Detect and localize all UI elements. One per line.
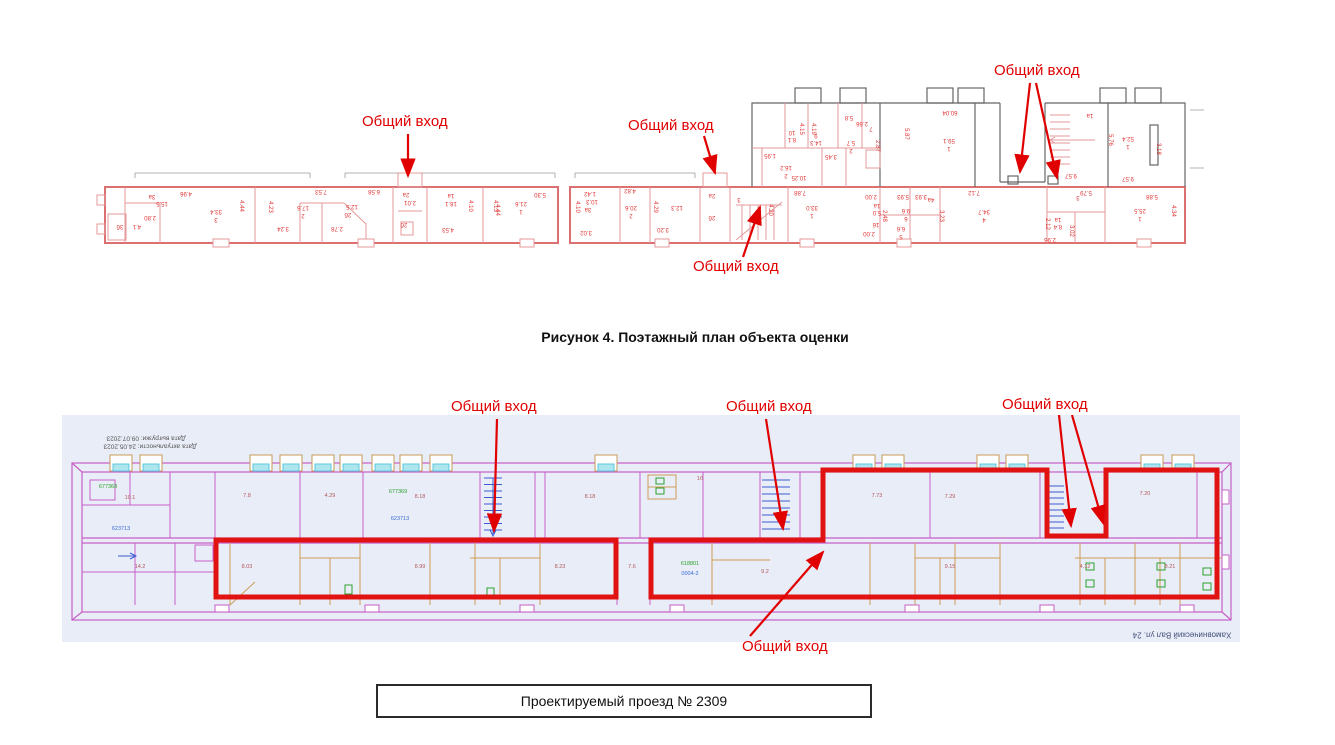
fixtures — [345, 478, 1211, 597]
window-marker — [977, 455, 999, 471]
tiny-label: 8.03 — [242, 564, 253, 570]
floor-plans-drawing — [0, 0, 1335, 745]
dim-label: 2.96 — [1044, 236, 1056, 242]
dim-label: 16 — [873, 221, 880, 227]
dim-label: 7.88 — [794, 189, 806, 195]
dim-label: 7 — [869, 125, 872, 131]
dim-label: 2а — [709, 192, 716, 198]
entrance-door — [1008, 176, 1018, 184]
dim-label: 2 — [784, 172, 787, 178]
window-glass — [885, 464, 901, 471]
window-marker — [1040, 605, 1054, 612]
dim-label: 1а — [1055, 216, 1062, 222]
report-page: Рисунок 4. Поэтажный план объекта оценки… — [0, 0, 1335, 745]
dim-label: 2 — [301, 212, 304, 218]
tiny-label: 4.29 — [325, 493, 336, 499]
dim-label: 8.1 — [788, 136, 796, 142]
dim-label: 4.15 — [798, 123, 804, 135]
dim-label: 3 — [214, 216, 217, 222]
window-glass — [315, 464, 331, 471]
dim-label: 2.00 — [863, 230, 875, 236]
dim-label: 4 — [982, 216, 985, 222]
window-marker — [897, 239, 911, 247]
entrance-arrow — [494, 419, 497, 531]
window-glass — [253, 464, 269, 471]
window-marker — [595, 455, 617, 471]
window-marker — [213, 239, 229, 247]
entrance-arrow — [750, 552, 823, 636]
right-wing-walls — [570, 173, 1185, 247]
tiny-label: 7.29 — [945, 494, 956, 500]
road-label-box: Проектируемый проезд № 2309 — [376, 684, 872, 718]
dim-label: 4.34 — [1170, 205, 1176, 217]
entrance-label: Общий вход — [1002, 396, 1088, 413]
window-marker — [280, 455, 302, 471]
dim-label: 4.53 — [442, 226, 454, 232]
entrance-door — [1048, 176, 1058, 184]
dim-label: 5.0 — [873, 209, 881, 215]
window-marker — [1222, 555, 1229, 569]
stairs-icon — [118, 478, 1064, 559]
chimney — [1135, 88, 1161, 103]
window-marker — [1137, 239, 1151, 247]
tiny-label: 4.12 — [1080, 564, 1091, 570]
dim-label: 3б — [117, 223, 124, 229]
entrance-label: Общий вход — [628, 117, 714, 134]
dim-label: 4.23 — [267, 201, 273, 213]
chimney — [958, 88, 984, 103]
dim-label: 5.87 — [903, 128, 909, 140]
dim-label: 3.18 — [1155, 143, 1161, 155]
window-marker — [520, 605, 534, 612]
dim-label: 5.93 — [897, 193, 909, 199]
entrance-vestibule — [398, 173, 422, 187]
dim-label: 6.58 — [368, 188, 380, 194]
window-marker — [1180, 605, 1194, 612]
address-label: Хамовнический Вал ул. 24 — [1133, 630, 1232, 639]
window-marker — [400, 455, 422, 471]
window-marker — [430, 455, 452, 471]
window-glass — [980, 464, 996, 471]
code-label: 618801 — [681, 561, 699, 567]
entrance-arrow — [766, 419, 783, 529]
dim-label: 2.66 — [856, 120, 868, 126]
dim-label: 25.5 — [1134, 207, 1146, 213]
dim-label: 4.29 — [652, 201, 658, 213]
tiny-label: 8.99 — [415, 564, 426, 570]
entrance-label: Общий вход — [994, 62, 1080, 79]
window-glass — [1175, 464, 1191, 471]
dim-label: 52.4 — [1122, 135, 1134, 141]
dim-label: 4.10 — [467, 200, 473, 212]
dim-label: 12.3 — [671, 204, 683, 210]
dim-label: 2 — [849, 147, 852, 153]
entrance-arrow — [743, 207, 760, 257]
dim-label: 10.3 — [586, 198, 598, 204]
window-marker — [372, 455, 394, 471]
window-glass — [433, 464, 449, 471]
window-glass — [1144, 464, 1160, 471]
tiny-label: 14.2 — [135, 564, 146, 570]
window-glass — [283, 464, 299, 471]
tiny-label: 7.6 — [628, 564, 636, 570]
dim-label: 2 — [629, 212, 632, 218]
dim-label: 59.1 — [943, 137, 955, 143]
dim-label: 1 — [947, 145, 950, 151]
window-marker — [110, 455, 132, 471]
survey-line — [135, 110, 1204, 178]
dim-label: 5 — [899, 233, 902, 239]
stairs-icon — [736, 202, 782, 240]
chimney — [1100, 88, 1126, 103]
dim-label: 3а — [149, 193, 156, 199]
dim-label: 3.23 — [938, 210, 944, 222]
partitions — [230, 475, 1222, 605]
window-marker — [670, 605, 684, 612]
window-glass — [343, 464, 359, 471]
window-marker — [365, 605, 379, 612]
dim-label: 15.5 — [156, 200, 168, 206]
dim-label: 34.7 — [978, 208, 990, 214]
dim-label: 5.88 — [1146, 193, 1158, 199]
entrance-label: Общий вход — [362, 113, 448, 130]
outer-walls — [72, 463, 1231, 620]
entrance-label: Общий вход — [693, 258, 779, 275]
dim-label: 2.00 — [865, 193, 877, 199]
dim-label: 4.44 — [238, 200, 244, 212]
figure-caption: Рисунок 4. Поэтажный план объекта оценки — [445, 329, 945, 345]
window-glass — [1009, 464, 1025, 471]
dim-label: 7.53 — [315, 188, 327, 194]
dim-label: 14.3 — [810, 139, 822, 145]
date-label: Дата выгрузки: 09.07.2023 — [106, 434, 185, 441]
code-label: 623713 — [112, 526, 130, 532]
dim-label: 4.13 — [492, 200, 498, 212]
dim-label: 2.80 — [144, 214, 156, 220]
dim-label: 3.02 — [580, 229, 592, 235]
dim-label: 3.93 — [915, 193, 927, 199]
entrance-arrows — [408, 83, 1103, 636]
dim-label: 8.4 — [1054, 223, 1062, 229]
tiny-label: 8.18 — [415, 494, 426, 500]
dim-label: 2.01 — [404, 199, 416, 205]
tiny-label: 7.20 — [1140, 491, 1151, 497]
entrance-arrow — [1036, 83, 1057, 178]
dim-label: 4.96 — [180, 190, 192, 196]
dim-label: 1а — [448, 192, 455, 198]
entrance-arrow — [1059, 415, 1071, 526]
dim-label: 20.6 — [625, 204, 637, 210]
dim-label: 3 — [1076, 194, 1079, 200]
dim-label: 3а — [585, 206, 592, 212]
window-marker — [520, 239, 534, 247]
entrance-arrow — [704, 136, 715, 173]
dim-label: 2б — [345, 211, 352, 217]
entrance-label: Общий вход — [726, 398, 812, 415]
tiny-label: 7.8 — [243, 493, 251, 499]
left-wing-walls — [97, 173, 558, 247]
window-marker — [655, 239, 669, 247]
window-glass — [598, 464, 614, 471]
upper-block-walls — [752, 88, 1185, 187]
entrance-arrow — [1072, 415, 1103, 523]
dim-label: 1 — [810, 212, 813, 218]
dim-label: 2.78 — [331, 225, 343, 231]
dim-label: 3.20 — [657, 226, 669, 232]
dim-label: 33.4 — [210, 208, 222, 214]
dim-label: 2б — [709, 214, 716, 220]
window-marker — [250, 455, 272, 471]
window-glass — [113, 464, 129, 471]
dim-label: 17.6 — [297, 204, 309, 210]
dim-label: 10 — [789, 129, 796, 135]
dim-label: 3.02 — [1068, 225, 1074, 237]
dim-label: 3 — [737, 196, 740, 202]
dim-label: 10.25 — [791, 174, 806, 180]
dim-label: 4.10 — [574, 201, 580, 213]
tiny-label: 8.23 — [555, 564, 566, 570]
dim-label: 9.57 — [1065, 172, 1077, 178]
tiny-label: 8.18 — [585, 494, 596, 500]
window-marker — [358, 239, 374, 247]
dim-label: 2.48 — [881, 210, 887, 222]
entrance-label: Общий вход — [742, 638, 828, 655]
dim-label: 1а — [874, 202, 881, 208]
dim-label: 1а — [1087, 112, 1094, 118]
dim-label: 4.19 — [810, 123, 816, 135]
entrance-arrow — [1020, 83, 1030, 172]
window-glass — [375, 464, 391, 471]
window-glass — [403, 464, 419, 471]
tiny-label: 1б — [697, 476, 703, 482]
window-marker — [140, 455, 162, 471]
window-marker — [340, 455, 362, 471]
code-label: 0004-2 — [681, 571, 698, 577]
window-marker — [1141, 455, 1163, 471]
dim-label: 9 — [814, 132, 817, 138]
tiny-label: 10.1 — [125, 495, 136, 501]
dim-label: 2а — [403, 191, 410, 197]
bottom-floor-plan — [62, 415, 1240, 642]
window-marker — [312, 455, 334, 471]
chimney — [840, 88, 866, 103]
dim-label: 2б — [401, 221, 408, 227]
code-label: 677369 — [389, 489, 407, 495]
dim-label: 7.12 — [968, 189, 980, 195]
date-label: Дата актуальности: 24.05.2023 — [104, 442, 197, 449]
dim-label: 4.82 — [624, 187, 636, 193]
dim-label: 3.45 — [825, 153, 837, 159]
dim-label: 33.0 — [806, 204, 818, 210]
window-glass — [143, 464, 159, 471]
dim-label: 5.30 — [534, 191, 546, 197]
window-marker — [800, 239, 814, 247]
tiny-label: 9.2 — [761, 569, 769, 575]
dim-label: 4.20 — [767, 204, 773, 216]
dim-label: 1.95 — [764, 152, 776, 158]
window-marker — [905, 605, 919, 612]
chimney — [795, 88, 821, 103]
dim-label: 4а — [928, 196, 935, 202]
plan-background — [62, 415, 1240, 642]
dim-label: 18.1 — [445, 200, 457, 206]
dim-label: 9.6 — [902, 207, 910, 213]
highlight-outline — [216, 470, 1217, 597]
dim-label: 5.76 — [1107, 134, 1113, 146]
window-glass — [856, 464, 872, 471]
window-marker — [1172, 455, 1194, 471]
dim-label: 1 — [519, 208, 522, 214]
dim-label: 5.79 — [1080, 189, 1092, 195]
tiny-label: 7.73 — [872, 493, 883, 499]
dim-label: 6 — [904, 215, 907, 221]
entrance-label: Общий вход — [451, 398, 537, 415]
dim-label: 2.87 — [874, 140, 880, 152]
tiny-label: 8.21 — [1165, 564, 1176, 570]
stairs-icon — [1050, 115, 1095, 164]
dim-label: 60.04 — [942, 109, 957, 115]
dim-label: 5.7 — [847, 139, 855, 145]
dim-label: 2.12 — [1044, 218, 1050, 230]
road-label: Проектируемый проезд № 2309 — [521, 693, 727, 709]
labels-layer: Рисунок 4. Поэтажный план объекта оценки… — [0, 0, 1335, 745]
upper-block-partitions — [752, 103, 1095, 187]
top-wall-windows — [110, 455, 1194, 471]
dim-label: 5.8 — [845, 114, 853, 120]
code-label: 623713 — [391, 516, 409, 522]
dim-label: 16.2 — [780, 164, 792, 170]
dim-label: 4.44 — [494, 204, 500, 216]
dim-label: 3.24 — [277, 225, 289, 231]
chimney — [927, 88, 953, 103]
window-marker — [215, 605, 229, 612]
code-label: 677368 — [99, 484, 117, 490]
dim-label: 1 — [1138, 215, 1141, 221]
dim-label: 1 — [1126, 143, 1129, 149]
top-floor-plan — [97, 88, 1204, 247]
window-marker — [1006, 455, 1028, 471]
dim-label: 6.6 — [897, 225, 905, 231]
entrance-vestibule — [703, 173, 727, 187]
dim-label: 21.6 — [515, 200, 527, 206]
dim-label: 12.5 — [346, 203, 358, 209]
dim-label: 4.1 — [133, 223, 141, 229]
window-marker — [1222, 490, 1229, 504]
window-marker — [882, 455, 904, 471]
room-walls — [82, 472, 1229, 612]
dim-label: 9.57 — [1122, 175, 1134, 181]
dim-label: 1.42 — [584, 190, 596, 196]
tiny-label: 9.15 — [945, 564, 956, 570]
window-marker — [853, 455, 875, 471]
